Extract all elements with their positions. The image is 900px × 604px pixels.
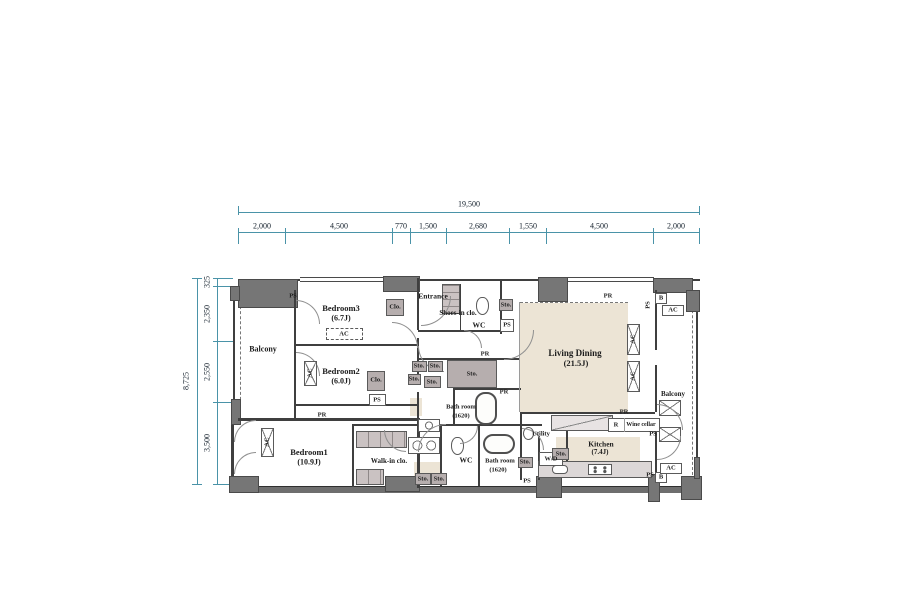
label-bedroom1-size: (10.9J) (297, 458, 320, 467)
tag-ac: AC (630, 334, 637, 343)
label-living-size: (21.5J) (564, 358, 589, 368)
dim-tick (546, 228, 547, 244)
dim-tick (213, 341, 233, 342)
dim-tick (392, 228, 393, 244)
dim-top-seg: 770 (395, 222, 407, 231)
kitchen-sink (552, 465, 568, 474)
door-walkin (384, 430, 406, 452)
tag-ps: PS (649, 431, 657, 438)
dim-top-seg: 2,680 (469, 222, 487, 231)
tag-ps: PS (373, 397, 381, 404)
dim-top-seg-line (238, 232, 700, 233)
wall-living-bottom (520, 412, 655, 414)
tag-pr: PR (604, 293, 613, 300)
dim-tick (653, 228, 654, 244)
window-top-1 (300, 277, 384, 282)
wall-wc2-right (478, 424, 480, 486)
label-wine-cellar: Wine cellar (626, 422, 655, 428)
wall-shoes (460, 284, 461, 332)
door-wc-top (464, 330, 482, 348)
dim-top-total-line (238, 212, 700, 213)
tag-sto: Sto. (501, 302, 512, 309)
tag-sto: Sto. (430, 363, 441, 370)
wall-corridor (417, 392, 419, 420)
wall-bed1-top (238, 418, 420, 421)
label-bath1-size: (1620) (452, 413, 469, 420)
dim-top-seg: 2,000 (253, 222, 271, 231)
door-balcony-kitchen (657, 436, 681, 460)
tag-ac: AC (668, 307, 677, 314)
tag-sto: Sto. (556, 451, 567, 458)
bathtub-1 (475, 392, 497, 425)
tag-sto: Sto. (434, 476, 445, 483)
label-bedroom2: Bedroom2 (322, 366, 360, 376)
balcony-left-inner (240, 291, 241, 415)
tag-ac: AC (264, 437, 271, 446)
label-bedroom1: Bedroom1 (290, 447, 328, 457)
tag-pr: PR (620, 409, 629, 416)
window-top-2 (568, 277, 654, 282)
tag-sto: Sto. (427, 379, 438, 386)
tag-ps: PS (503, 322, 511, 329)
tag-sto: Sto. (409, 376, 420, 383)
label-living: Living Dining (548, 348, 601, 358)
dim-tick (192, 484, 202, 485)
dim-tick (192, 278, 202, 279)
label-balcony-left: Balcony (249, 345, 277, 354)
tag-pr: PR (318, 412, 327, 419)
tag-ac: AC (666, 465, 675, 472)
pillar (230, 286, 240, 301)
dim-left-total-line (197, 278, 198, 485)
wine-cellar-divider (624, 418, 625, 432)
label-bedroom2-size: (6.0J) (331, 377, 350, 386)
label-bath2: Bath room (485, 458, 515, 465)
tag-b: B (659, 295, 663, 302)
dim-top-total: 19,500 (458, 200, 480, 209)
label-bedroom3: Bedroom3 (322, 303, 360, 313)
wall-bed2-pr (294, 404, 419, 406)
tag-sto: Sto. (467, 371, 478, 378)
label-wc-bottom: WC (460, 456, 473, 465)
dim-top-seg: 2,000 (667, 222, 685, 231)
tag-pr: PR (481, 351, 490, 358)
pillar (694, 457, 700, 479)
dim-tick (410, 228, 411, 244)
pillar (231, 399, 241, 425)
label-bath2-size: (1620) (489, 467, 506, 474)
stove (588, 464, 612, 475)
tag-ps: PS (646, 472, 654, 479)
dim-top-seg: 4,500 (590, 222, 608, 231)
tag-ps: PS (289, 293, 297, 300)
dim-left-seg-line (217, 278, 218, 485)
label-bath1: Bath room (446, 404, 476, 411)
tag-sto: Sto. (418, 476, 429, 483)
dim-tick (699, 206, 700, 215)
toilet-top (476, 297, 489, 315)
tag-clo: Clo. (389, 304, 400, 311)
wall-corridor (417, 278, 419, 330)
label-balcony-right: Balcony (661, 390, 685, 398)
dim-tick (238, 206, 239, 215)
tag-ps: PS (523, 478, 531, 485)
bathtub-2 (483, 434, 515, 454)
dim-left-seg: 3,500 (203, 434, 212, 452)
floor-plan: 19,500 2,000 4,500 770 1,500 2,680 1,550… (0, 0, 900, 604)
label-bedroom3-size: (6.7J) (331, 314, 350, 323)
dim-tick (213, 278, 233, 279)
tag-pr: PR (500, 389, 509, 396)
pillar (383, 276, 420, 292)
wall-sani-top (440, 424, 542, 426)
pillar (538, 277, 568, 302)
wall-hall-1 (418, 330, 502, 332)
wall-living-left (519, 302, 520, 412)
tag-r: R (614, 422, 619, 429)
door-bedroom3 (392, 322, 418, 348)
door-balcony-b3 (296, 300, 320, 324)
dim-left-seg: 2,550 (203, 363, 212, 381)
tag-ps: PS (645, 301, 652, 309)
label-kitchen-size: (7.4J) (592, 448, 609, 456)
dim-left-total: 8,725 (182, 372, 191, 390)
tag-ac: AC (307, 368, 314, 377)
dim-left-seg: 325 (203, 276, 212, 288)
tag-sto: Sto. (520, 459, 531, 466)
pillar (681, 476, 702, 500)
tag-ac: AC (339, 331, 348, 338)
dim-top-seg: 1,550 (519, 222, 537, 231)
dim-tick (699, 228, 700, 244)
balcony-right-inner (692, 295, 693, 475)
tag-sto: Sto. (414, 363, 425, 370)
wall-walkin-top (352, 424, 418, 426)
dim-tick (446, 228, 447, 244)
walkin-storage-bottom (356, 469, 384, 485)
dim-tick (285, 228, 286, 244)
label-wc-top: WC (473, 321, 486, 330)
dim-tick (238, 228, 239, 244)
living-top-dashed (520, 302, 628, 303)
bath-floor (410, 398, 422, 416)
dim-top-seg: 1,500 (419, 222, 437, 231)
label-utility: Utility (532, 431, 550, 438)
wall-bottom (256, 486, 688, 493)
wall-walkin-left (352, 424, 354, 487)
balcony-right-railing (696, 292, 698, 477)
pillar (229, 476, 259, 493)
kitchen-island (551, 415, 613, 431)
door-wc-bottom (460, 426, 478, 444)
wall-bath1-top (453, 388, 521, 390)
pillar (686, 290, 700, 312)
tag-clo: Clo. (370, 377, 381, 384)
label-walkin: Walk-in clo. (371, 457, 407, 465)
dim-tick (509, 228, 510, 244)
label-shoes: Shoes-in clo. (439, 309, 476, 317)
tag-ac: AC (630, 371, 637, 380)
dim-top-seg: 4,500 (330, 222, 348, 231)
tag-b: B (659, 474, 663, 481)
window-bed1-2 (234, 452, 256, 474)
dim-tick (213, 402, 233, 403)
dim-left-seg: 2,350 (203, 305, 212, 323)
label-entrance: Entrance (418, 292, 448, 301)
